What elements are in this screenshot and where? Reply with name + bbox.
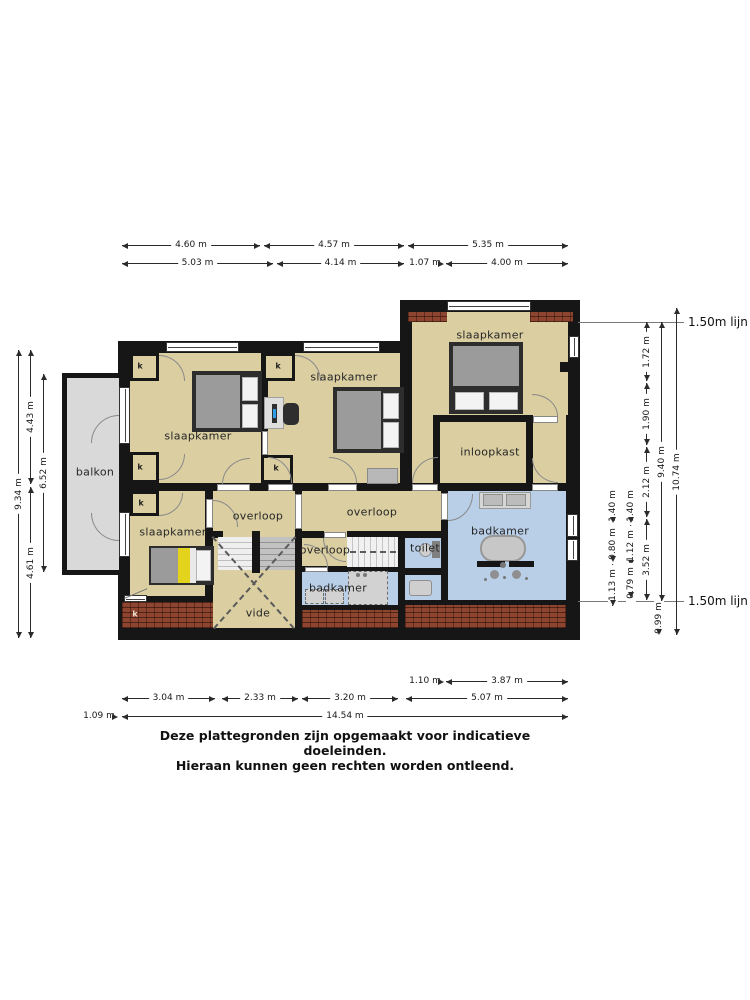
dimension: 9.40 m bbox=[661, 322, 662, 601]
dimension-label: 1.07 m bbox=[405, 258, 445, 268]
closet-label: k bbox=[275, 362, 280, 371]
dimension: 3.04 m bbox=[122, 698, 215, 699]
closet-label: k bbox=[138, 499, 143, 508]
dimension: 2.12 m bbox=[646, 447, 647, 517]
wall bbox=[441, 521, 448, 568]
dimension: 4.60 m bbox=[122, 245, 260, 246]
bed-mattress bbox=[337, 391, 381, 449]
dimension: 1.12 m bbox=[630, 525, 631, 566]
dimension-label: 0.99 m bbox=[654, 598, 664, 638]
wall bbox=[252, 531, 260, 573]
dresser bbox=[367, 468, 398, 484]
dimension-label: 3.52 m bbox=[642, 540, 652, 580]
dimension-label: 9.40 m bbox=[657, 442, 667, 482]
bed-pillow bbox=[383, 422, 399, 448]
shower-head bbox=[363, 573, 367, 577]
dimension: 2.33 m bbox=[222, 698, 298, 699]
shower-control-dot bbox=[484, 578, 487, 581]
room-label-bedroom: slaapkamer bbox=[456, 329, 523, 342]
dimension-label: 2.12 m bbox=[642, 462, 652, 502]
bed-blanket bbox=[178, 548, 190, 583]
roof-brick-strip bbox=[530, 312, 573, 322]
dimension: 1.10 m bbox=[406, 681, 444, 682]
dimension: 3.20 m bbox=[302, 698, 398, 699]
dimension: 4.57 m bbox=[264, 245, 404, 246]
room-label-landing: overloop bbox=[347, 506, 397, 519]
dimension: 1.90 m bbox=[646, 383, 647, 445]
room-label-landing: overloop bbox=[300, 544, 350, 557]
dimension-label: 4.00 m bbox=[487, 258, 527, 268]
dimension: 4.61 m bbox=[30, 487, 31, 638]
dimension: 3.52 m bbox=[646, 519, 647, 600]
bed-mattress bbox=[196, 375, 240, 428]
balcony-door-window bbox=[119, 512, 130, 557]
room-label-void: vide bbox=[246, 607, 271, 620]
bed-mattress bbox=[453, 346, 519, 386]
dimension: 0.80 m bbox=[612, 525, 613, 562]
closet-label: k bbox=[273, 464, 278, 473]
door-opening bbox=[206, 499, 213, 528]
dimension-label: 1.09 m bbox=[79, 711, 119, 721]
stairs-flight-left bbox=[218, 537, 252, 570]
dimension-label: 4.57 m bbox=[314, 240, 354, 250]
dimension-label: 6.52 m bbox=[39, 453, 49, 493]
door-opening bbox=[217, 484, 250, 491]
dimension: 5.35 m bbox=[408, 245, 568, 246]
dimension: 6.52 m bbox=[43, 374, 44, 572]
shower-head bbox=[512, 570, 521, 579]
dimension: 9.34 m bbox=[18, 350, 19, 638]
room-label-bedroom: slaapkamer bbox=[164, 430, 231, 443]
dimension-label: 4.60 m bbox=[171, 240, 211, 250]
dimension: 1.40 m bbox=[630, 488, 631, 523]
wall bbox=[205, 491, 213, 499]
door-opening bbox=[412, 484, 438, 491]
room-label-bathroom: badkamer bbox=[309, 582, 367, 595]
dimension: 14.54 m bbox=[122, 716, 568, 717]
bed-pillow bbox=[242, 377, 258, 401]
bed-pillow bbox=[489, 392, 518, 410]
roof-brick-strip bbox=[408, 312, 447, 322]
door-opening bbox=[532, 484, 558, 491]
door-opening bbox=[295, 494, 302, 529]
room-label-bedroom: slaapkamer bbox=[310, 371, 377, 384]
stairs-direction-line bbox=[350, 551, 396, 553]
dimension: 1.09 m bbox=[80, 716, 118, 717]
dimension-label: 5.03 m bbox=[178, 258, 218, 268]
dimension-label: 4.61 m bbox=[26, 543, 36, 583]
washbasin bbox=[506, 494, 526, 506]
room-label-toilet: toilet bbox=[410, 542, 440, 555]
roof-brick-strip bbox=[302, 610, 398, 628]
window bbox=[166, 342, 239, 352]
wall bbox=[293, 483, 328, 491]
monitor-screen bbox=[273, 409, 276, 418]
wall bbox=[130, 483, 217, 491]
washbasin bbox=[483, 494, 503, 506]
dimension: 4.00 m bbox=[446, 263, 568, 264]
wall bbox=[433, 415, 533, 422]
bathtub bbox=[480, 535, 526, 562]
dimension-label: 9.34 m bbox=[14, 474, 24, 514]
dimension: 0.79 m bbox=[630, 568, 631, 598]
window bbox=[303, 342, 380, 352]
dimension-label: 3.20 m bbox=[330, 693, 370, 703]
height-reference-label: 1.50m lijn bbox=[688, 594, 748, 608]
dimension-label: 1.72 m bbox=[642, 332, 652, 372]
bed-pillow bbox=[383, 393, 399, 419]
closet-label: k bbox=[132, 610, 137, 619]
dimension-label: 3.87 m bbox=[487, 676, 527, 686]
dimension-label: 1.12 m bbox=[626, 526, 636, 566]
closet-box bbox=[130, 353, 159, 381]
shower-control-dot bbox=[525, 577, 528, 580]
dimension-label: 10.74 m bbox=[672, 449, 682, 494]
door-opening bbox=[328, 484, 357, 491]
bathtub-drain bbox=[500, 562, 506, 568]
dimension-label: 5.07 m bbox=[467, 693, 507, 703]
room-label-balcony: balkon bbox=[76, 466, 114, 479]
dimension-label: 5.35 m bbox=[468, 240, 508, 250]
shower-head bbox=[490, 570, 499, 579]
dimension: 4.43 m bbox=[30, 350, 31, 484]
bed-mattress bbox=[151, 548, 178, 583]
wall bbox=[560, 362, 580, 372]
door-opening bbox=[533, 416, 558, 423]
dimension-label: 4.43 m bbox=[26, 397, 36, 437]
dimension-label: 0.80 m bbox=[608, 524, 618, 564]
room-label-bedroom: slaapkamer bbox=[139, 526, 206, 539]
dimension: 1.07 m bbox=[406, 263, 444, 264]
bed-pillow bbox=[196, 550, 211, 581]
wall bbox=[438, 483, 532, 491]
dimension: 1.72 m bbox=[646, 322, 647, 381]
shower-partition bbox=[509, 561, 534, 567]
room-label-landing: overloop bbox=[233, 510, 283, 523]
bed-pillow bbox=[455, 392, 484, 410]
dimension: 1.13 m bbox=[612, 564, 613, 606]
desk-chair bbox=[283, 403, 299, 425]
dimension: 1.40 m bbox=[612, 488, 613, 523]
disclaimer: Deze plattegronden zijn opgemaakt voor i… bbox=[122, 728, 568, 773]
floor-plan-page: slaapkamer slaapkamer slaapkamer slaapka… bbox=[0, 0, 750, 1000]
door-opening bbox=[441, 493, 448, 520]
dimension: 0.99 m bbox=[658, 601, 659, 635]
closet-box bbox=[130, 452, 159, 483]
dimension-label: 1.13 m bbox=[608, 565, 618, 605]
wall bbox=[357, 483, 412, 491]
disclaimer-line1: Deze plattegronden zijn opgemaakt voor i… bbox=[122, 728, 568, 758]
shower-head bbox=[356, 573, 360, 577]
wall bbox=[526, 422, 533, 483]
window bbox=[447, 301, 531, 311]
dimension-label: 14.54 m bbox=[322, 711, 367, 721]
shower-control-dot bbox=[503, 576, 506, 579]
closet-label: k bbox=[137, 362, 142, 371]
window bbox=[567, 514, 578, 537]
dimension-label: 3.04 m bbox=[149, 693, 189, 703]
window bbox=[569, 336, 579, 358]
bed-pillow bbox=[242, 404, 258, 428]
dimension: 5.07 m bbox=[406, 698, 568, 699]
wall bbox=[398, 531, 405, 628]
door-opening bbox=[262, 431, 268, 455]
window bbox=[567, 539, 578, 561]
door-opening bbox=[305, 567, 328, 572]
dimension-label: 1.40 m bbox=[626, 486, 636, 526]
dimension-label: 4.14 m bbox=[321, 258, 361, 268]
dimension-label: 1.40 m bbox=[608, 486, 618, 526]
dimension-label: 2.33 m bbox=[240, 693, 280, 703]
dimension: 4.14 m bbox=[277, 263, 404, 264]
washbasin bbox=[409, 580, 432, 596]
height-reference-label: 1.50m lijn bbox=[688, 315, 748, 329]
dimension: 5.03 m bbox=[122, 263, 273, 264]
closet-label: k bbox=[137, 463, 142, 472]
wall bbox=[405, 568, 441, 575]
wall bbox=[558, 483, 568, 491]
closet-box bbox=[130, 491, 159, 516]
room-label-bathroom: badkamer bbox=[471, 525, 529, 538]
dimension-label: 0.79 m bbox=[626, 563, 636, 603]
height-reference-line bbox=[578, 322, 684, 323]
roof-brick-strip bbox=[405, 605, 566, 628]
disclaimer-line2: Hieraan kunnen geen rechten worden ontle… bbox=[122, 758, 568, 773]
wall bbox=[250, 483, 268, 491]
wall bbox=[302, 531, 324, 538]
door-opening bbox=[268, 484, 293, 491]
balcony-door-window bbox=[119, 387, 130, 444]
dimension-label: 1.90 m bbox=[642, 394, 652, 434]
dimension: 10.74 m bbox=[676, 308, 677, 635]
dimension: 3.87 m bbox=[446, 681, 568, 682]
dimension-label: 1.10 m bbox=[405, 676, 445, 686]
room-label-walkin-closet: inloopkast bbox=[460, 446, 520, 459]
